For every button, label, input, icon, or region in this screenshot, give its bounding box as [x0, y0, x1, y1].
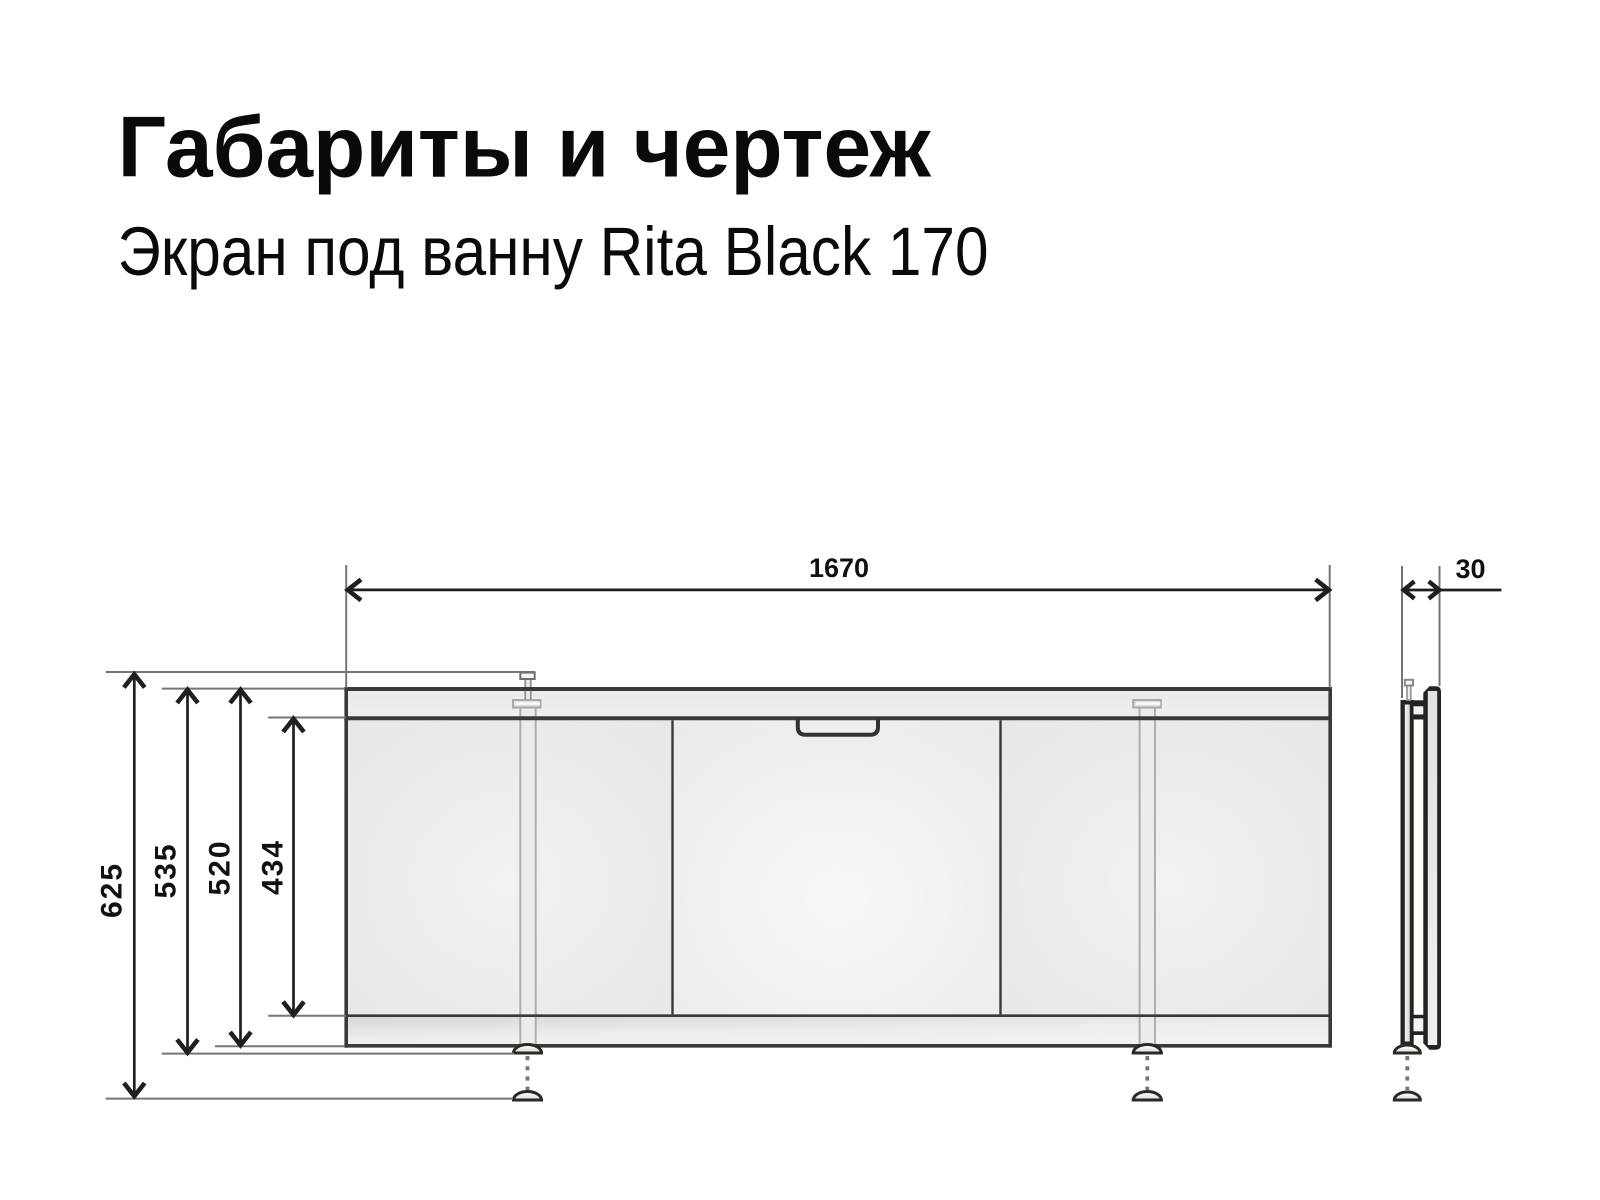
svg-text:30: 30: [1455, 554, 1485, 584]
svg-text:625: 625: [96, 862, 129, 918]
svg-text:1670: 1670: [809, 553, 869, 583]
svg-text:434: 434: [257, 839, 290, 895]
svg-text:Габариты и чертеж: Габариты и чертеж: [118, 100, 933, 196]
svg-text:Экран под ванну Rita Black 170: Экран под ванну Rita Black 170: [118, 213, 989, 290]
svg-text:520: 520: [204, 839, 237, 895]
svg-text:535: 535: [150, 842, 183, 898]
